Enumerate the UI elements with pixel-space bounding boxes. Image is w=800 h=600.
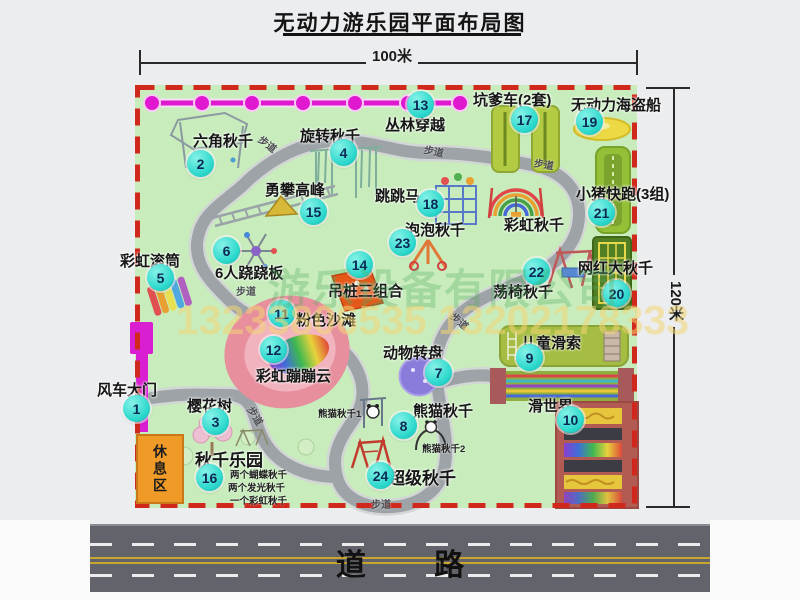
walkway-label-3: 步道 — [533, 154, 555, 172]
walkway-label-7: 步道 — [371, 496, 391, 511]
dim-top-tick-left — [139, 50, 141, 75]
label-rainbow-cloud: 彩虹蹦蹦云 — [256, 365, 331, 386]
frame-mask-right — [710, 520, 800, 600]
badge-8: 8 — [390, 412, 417, 439]
road: 道 路 — [90, 524, 710, 594]
rest-area: 休息区 — [136, 434, 184, 504]
badge-2: 2 — [187, 150, 214, 177]
badge-10: 10 — [557, 406, 584, 433]
label-panda-swing-2: 熊猫秋千2 — [422, 441, 465, 455]
badge-18: 18 — [417, 190, 444, 217]
swing-park-note-2: 两个发光秋千 — [228, 480, 285, 494]
frame-mask-bottom — [0, 592, 800, 600]
badge-1: 1 — [123, 395, 150, 422]
badge-19: 19 — [576, 108, 603, 135]
label-windmill-gate: 风车大门 — [97, 379, 157, 400]
label-kengdie-car: 坑爹车(2套) — [473, 89, 551, 110]
badge-21: 21 — [588, 199, 615, 226]
title-underline — [283, 33, 521, 36]
dim-top-label: 100米 — [366, 45, 418, 66]
swing-park-note-1: 两个蝴蝶秋千 — [230, 467, 287, 481]
dim-top-tick-right — [636, 50, 638, 75]
label-rainbow-swing: 彩虹秋千 — [504, 214, 564, 235]
badge-3: 3 — [202, 408, 229, 435]
label-panda-swing: 熊猫秋千 — [413, 400, 473, 421]
frame-mask-left — [0, 520, 90, 600]
label-piggy-run: 小猪快跑(3组) — [576, 183, 669, 204]
badge-24: 24 — [367, 462, 394, 489]
label-panda-swing-1: 熊猫秋千1 — [318, 406, 361, 420]
badge-6: 6 — [213, 237, 240, 264]
rest-area-label: 休息区 — [150, 444, 170, 495]
badge-13: 13 — [407, 91, 434, 118]
badge-23: 23 — [389, 229, 416, 256]
road-label: 道 路 — [90, 540, 710, 584]
badge-7: 7 — [425, 359, 452, 386]
badge-5: 5 — [147, 264, 174, 291]
badge-9: 9 — [516, 344, 543, 371]
badge-16: 16 — [196, 464, 223, 491]
label-jumping-horse: 跳跳马 — [375, 185, 420, 206]
label-hexagon-swing: 六角秋千 — [193, 130, 253, 151]
park-layout-poster: 无动力游乐园平面布局图 100米 120米 — [0, 0, 800, 600]
badge-17: 17 — [511, 106, 538, 133]
swing-park-note-3: 一个彩虹秋千 — [230, 493, 287, 507]
watermark-phones: 13233806535 13202178333 — [176, 297, 689, 344]
badge-15: 15 — [300, 198, 327, 225]
dim-right-tick-top — [646, 87, 690, 89]
walkway-label-4: 步道 — [236, 283, 256, 298]
label-peak-climbing: 勇攀高峰 — [265, 179, 325, 200]
label-super-swing: 超级秋千 — [388, 464, 456, 489]
badge-4: 4 — [330, 139, 357, 166]
dim-right-tick-bottom — [646, 506, 690, 508]
